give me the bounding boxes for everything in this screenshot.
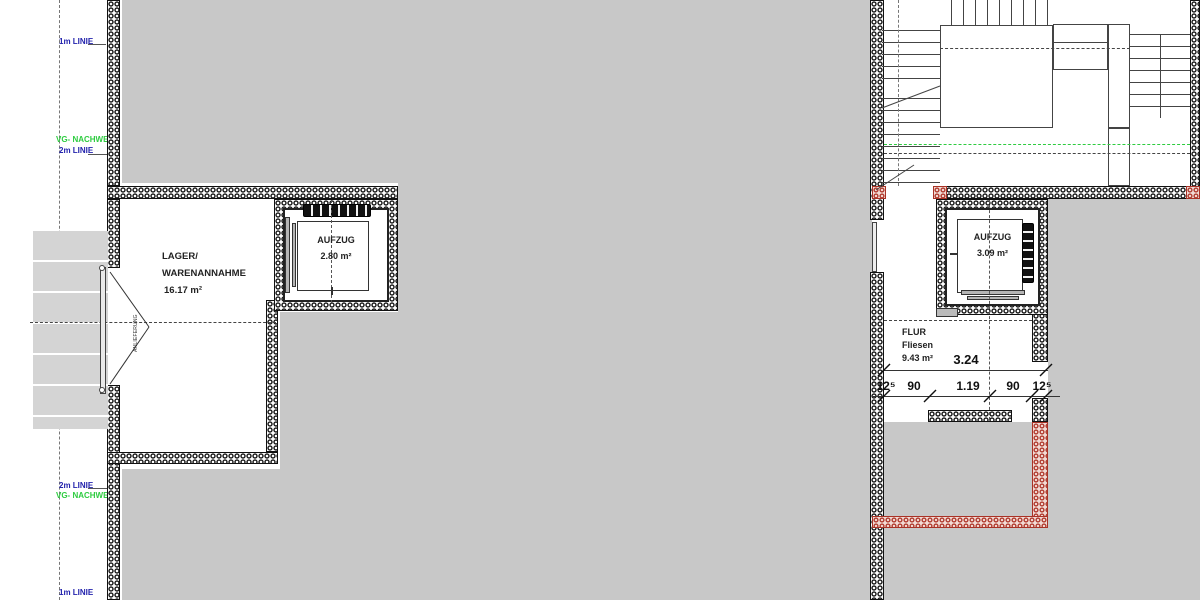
stairwell-door-swing <box>876 165 914 190</box>
dim-tick-4 <box>924 390 936 402</box>
dim-tick-1 <box>878 364 890 376</box>
stair-break-line <box>882 86 940 108</box>
dim-tick-7 <box>1040 390 1052 402</box>
dim-tick-6 <box>1026 390 1038 402</box>
floor-plan-canvas: 1m LINIE VG- NACHWEIS 2m LINIE 2m LINIE … <box>0 0 1200 600</box>
door-swing-line-top <box>110 272 149 327</box>
dim-tick-2 <box>1040 364 1052 376</box>
dim-tick-5 <box>984 390 996 402</box>
door-swing-line-bottom <box>110 327 149 384</box>
diagonal-lines-layer <box>0 0 1200 600</box>
dim-tick-3 <box>878 390 890 402</box>
